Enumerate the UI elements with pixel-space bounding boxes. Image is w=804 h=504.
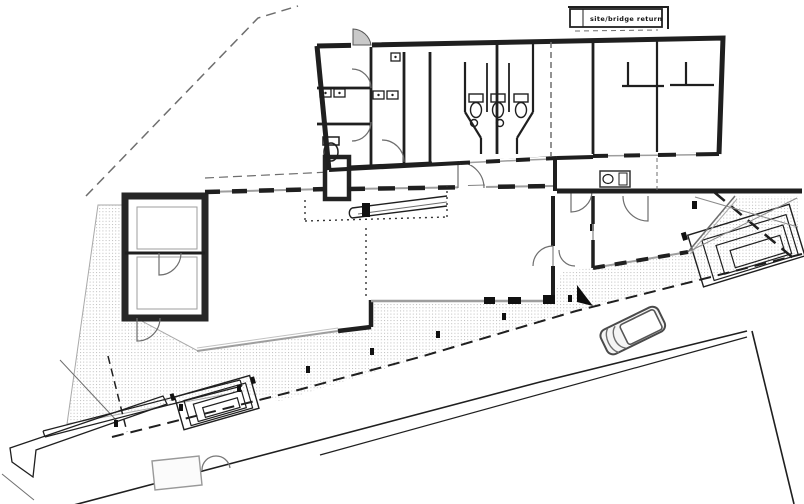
roof-overhang-dotted bbox=[305, 186, 447, 300]
upper-wing bbox=[317, 29, 723, 170]
garage-block bbox=[125, 196, 205, 341]
living-entry-door bbox=[458, 162, 484, 188]
parked-car bbox=[598, 304, 667, 356]
sink-fixtures bbox=[320, 53, 400, 99]
title-box-label: site/bridge return bbox=[590, 15, 662, 23]
wardrobe-rails bbox=[622, 40, 714, 152]
site-plan-drawing: site/bridge return bbox=[0, 0, 804, 504]
floor-plan-canvas[interactable]: site/bridge return bbox=[0, 0, 804, 504]
top-entry-door bbox=[353, 29, 371, 45]
interior-door-swings bbox=[352, 69, 404, 162]
entry-gate bbox=[152, 456, 230, 490]
entry-ramp bbox=[349, 196, 447, 218]
passage-door bbox=[571, 191, 592, 212]
title-box: site/bridge return bbox=[568, 7, 668, 31]
bathroom-stalls bbox=[465, 42, 533, 154]
toilet-fixtures bbox=[469, 94, 528, 127]
corridor-wc-fixture bbox=[600, 171, 630, 187]
se-room-door bbox=[623, 196, 648, 221]
